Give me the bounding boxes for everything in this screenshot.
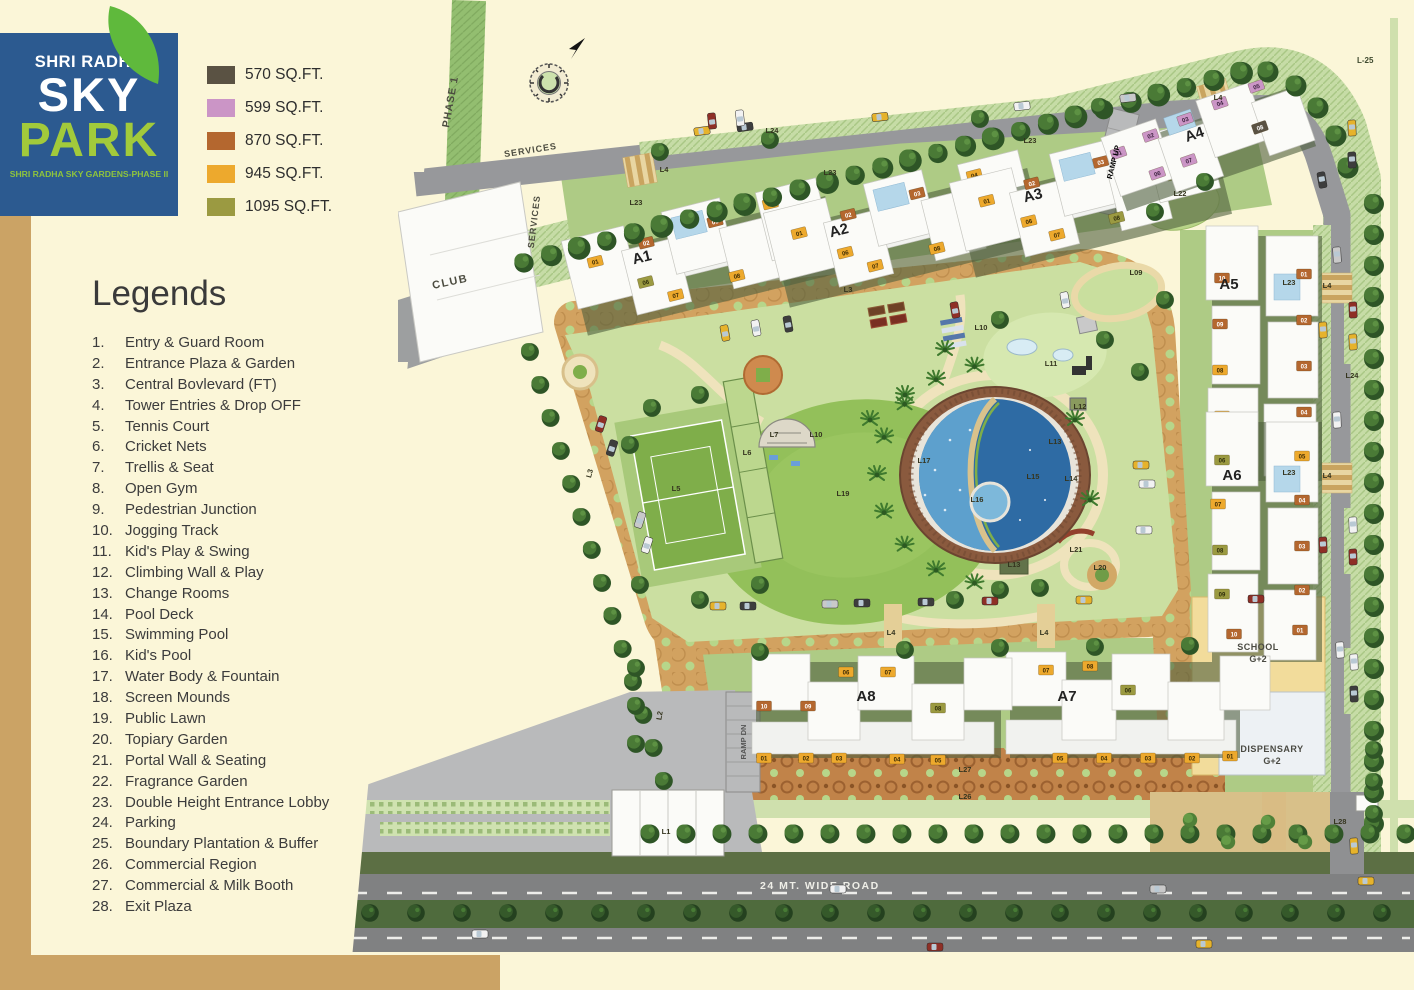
legend-item-number: 4. xyxy=(92,397,125,414)
legend-item: 27. Commercial & Milk Booth xyxy=(92,875,329,896)
map-label-l13: L13 xyxy=(1008,560,1021,569)
car xyxy=(918,598,934,606)
svg-text:04: 04 xyxy=(1101,756,1108,762)
unit-badge: 01 xyxy=(1297,269,1312,279)
svg-text:04: 04 xyxy=(894,757,901,763)
legend-item-number: 3. xyxy=(92,376,125,393)
legend-item-label: Screen Mounds xyxy=(125,689,230,706)
svg-text:01: 01 xyxy=(1297,628,1304,634)
legend-item-number: 27. xyxy=(92,877,125,894)
legend-item: 25. Boundary Plantation & Buffer xyxy=(92,833,329,854)
unit-badge: 06 xyxy=(839,667,854,677)
car xyxy=(1196,940,1212,948)
legend-item: 4. Tower Entries & Drop OFF xyxy=(92,395,329,416)
legend-item: 17. Water Body & Fountain xyxy=(92,666,329,687)
legend-item-label: Commercial Region xyxy=(125,856,257,873)
crossing-L4-a xyxy=(623,153,658,188)
car xyxy=(927,943,943,951)
car xyxy=(1349,517,1358,533)
car xyxy=(822,600,838,608)
unit-badge: 02 xyxy=(1297,315,1312,325)
map-label-l10: L10 xyxy=(975,323,988,332)
svg-text:07: 07 xyxy=(885,670,892,676)
car xyxy=(1333,247,1342,263)
legend-item-number: 15. xyxy=(92,626,125,643)
legend-item-label: Jogging Track xyxy=(125,522,218,539)
frame-left-strip xyxy=(0,216,31,990)
svg-text:09: 09 xyxy=(805,704,812,710)
legend-item: 5. Tennis Court xyxy=(92,416,329,437)
car xyxy=(982,597,998,605)
legend-item-number: 9. xyxy=(92,501,125,518)
legend-item: 15. Swimming Pool xyxy=(92,624,329,645)
legend-item: 14. Pool Deck xyxy=(92,604,329,625)
legend-item-number: 6. xyxy=(92,438,125,455)
legend-item: 21. Portal Wall & Seating xyxy=(92,750,329,771)
legend-item: 8. Open Gym xyxy=(92,478,329,499)
car xyxy=(1349,302,1358,318)
site-plan-map: 0102030405060708 0102030405060708 010203… xyxy=(340,0,1414,990)
legend-item: 24. Parking xyxy=(92,812,329,833)
car xyxy=(1336,642,1345,658)
unit-badge: 06 xyxy=(1121,685,1136,695)
unit-badge: 05 xyxy=(1295,451,1310,461)
size-legend: 570 SQ.FT.599 SQ.FT.870 SQ.FT.945 SQ.FT.… xyxy=(207,66,332,231)
legend-item-number: 28. xyxy=(92,898,125,915)
ramp-down-label: RAMP DN xyxy=(739,725,748,760)
map-label-l22: L22 xyxy=(1174,189,1187,198)
map-label-l15: L15 xyxy=(1027,472,1040,481)
unit-badge: 09 xyxy=(801,701,816,711)
legend-item-number: 1. xyxy=(92,334,125,351)
building-label-a8: A8 xyxy=(856,688,875,705)
size-legend-item: 599 SQ.FT. xyxy=(207,99,332,117)
size-label: 599 SQ.FT. xyxy=(245,99,323,117)
svg-text:08: 08 xyxy=(1087,664,1094,670)
size-legend-item: 945 SQ.FT. xyxy=(207,165,332,183)
size-label: 945 SQ.FT. xyxy=(245,165,323,183)
map-label-l16: L16 xyxy=(971,495,984,504)
size-legend-item: 1095 SQ.FT. xyxy=(207,198,332,216)
entry-gate-L1 xyxy=(612,790,724,856)
unit-badge: 02 xyxy=(799,753,814,763)
legend-item-label: Entrance Plaza & Garden xyxy=(125,355,295,372)
legend-item-number: 24. xyxy=(92,814,125,831)
legend-item-label: Pool Deck xyxy=(125,606,193,623)
pond xyxy=(1007,339,1037,355)
legend-item-label: Entry & Guard Room xyxy=(125,334,264,351)
unit-badge: 04 xyxy=(1097,753,1112,763)
map-label-l6: L6 xyxy=(743,448,752,457)
size-legend-item: 570 SQ.FT. xyxy=(207,66,332,84)
svg-text:02: 02 xyxy=(1299,588,1306,594)
legend-item-label: Boundary Plantation & Buffer xyxy=(125,835,318,852)
svg-text:01: 01 xyxy=(1227,754,1234,760)
map-label-l14: L14 xyxy=(1065,474,1079,483)
car xyxy=(735,110,745,127)
legend-item-number: 2. xyxy=(92,355,125,372)
legend-item: 10. Jogging Track xyxy=(92,520,329,541)
legend-item-number: 20. xyxy=(92,731,125,748)
map-label-l11: L11 xyxy=(1045,359,1058,368)
svg-text:03: 03 xyxy=(1301,364,1308,370)
play-equipment2 xyxy=(1086,356,1092,370)
boundary-strip-east xyxy=(1390,18,1398,860)
legend-item-number: 26. xyxy=(92,856,125,873)
building-a6: 06050704080309021001 xyxy=(1206,412,1322,662)
svg-text:05: 05 xyxy=(935,758,942,764)
map-label-l17: L17 xyxy=(918,456,931,465)
legend-item-number: 5. xyxy=(92,418,125,435)
svg-text:05: 05 xyxy=(1299,454,1306,460)
svg-text:03: 03 xyxy=(836,756,843,762)
legend-item-label: Exit Plaza xyxy=(125,898,192,915)
legend-item-label: Public Lawn xyxy=(125,710,206,727)
legend-item-number: 18. xyxy=(92,689,125,706)
map-label-l21: L21 xyxy=(1070,545,1083,554)
legend-item-label: Trellis & Seat xyxy=(125,459,214,476)
legend-item-label: Cricket Nets xyxy=(125,438,207,455)
map-label-l23: L23 xyxy=(1024,136,1037,145)
legend-item-label: Topiary Garden xyxy=(125,731,228,748)
size-swatch xyxy=(207,66,235,84)
legend-item-label: Portal Wall & Seating xyxy=(125,752,266,769)
car xyxy=(872,112,889,122)
legend-item: 6. Cricket Nets xyxy=(92,436,329,457)
car xyxy=(1139,480,1155,488)
map-label-l09: L09 xyxy=(1130,268,1143,277)
size-legend-item: 870 SQ.FT. xyxy=(207,132,332,150)
legend-item: 1. Entry & Guard Room xyxy=(92,332,329,353)
car xyxy=(1150,885,1166,893)
car xyxy=(1349,334,1358,350)
legends-title: Legends xyxy=(92,274,226,314)
svg-text:03: 03 xyxy=(1299,544,1306,550)
frame-bottom-strip xyxy=(0,955,500,990)
legend-item-label: Open Gym xyxy=(125,480,198,497)
dispensary-label: DISPENSARY xyxy=(1240,744,1303,754)
unit-badge: 06 xyxy=(1215,455,1230,465)
map-label-l13: L13 xyxy=(1049,437,1062,446)
legend-item-number: 22. xyxy=(92,773,125,790)
hedge-row-1 xyxy=(360,800,610,814)
car xyxy=(1136,526,1152,534)
school-floors-label: G+2 xyxy=(1249,654,1266,664)
building-label-a5: A5 xyxy=(1219,276,1238,293)
legend-item-label: Change Rooms xyxy=(125,585,229,602)
map-label-l2: L2 xyxy=(654,710,664,720)
car xyxy=(854,599,870,607)
svg-text:09: 09 xyxy=(1219,592,1226,598)
map-label-l4: L4 xyxy=(1323,471,1333,480)
car xyxy=(740,602,756,610)
svg-text:07: 07 xyxy=(1043,668,1050,674)
svg-text:02: 02 xyxy=(1189,756,1196,762)
unit-badge: 07 xyxy=(881,667,896,677)
legend-item: 2. Entrance Plaza & Garden xyxy=(92,353,329,374)
legend-item-number: 13. xyxy=(92,585,125,602)
boundary-label: L-25 xyxy=(1357,56,1374,65)
car xyxy=(1350,838,1359,854)
car xyxy=(1133,461,1149,469)
wide-road-label: 24 MT. WIDE ROAD xyxy=(760,880,880,892)
logo-title-park: PARK xyxy=(0,118,178,164)
unit-badge: 01 xyxy=(757,753,772,763)
unit-badge: 08 xyxy=(931,703,946,713)
svg-text:06: 06 xyxy=(1125,688,1132,694)
car xyxy=(1350,654,1359,670)
logo-subtitle: SHRI RADHA SKY GARDENS-PHASE II xyxy=(0,169,178,179)
unit-badge: 10 xyxy=(1227,629,1242,639)
svg-text:01: 01 xyxy=(1301,272,1308,278)
hedge-row-2 xyxy=(380,822,610,836)
map-label-l27: L27 xyxy=(959,765,972,774)
svg-text:06: 06 xyxy=(843,670,850,676)
leaf-icon xyxy=(94,2,176,88)
legend-item: 22. Fragrance Garden xyxy=(92,771,329,792)
legend-item-number: 19. xyxy=(92,710,125,727)
map-label-l20: L20 xyxy=(1094,563,1107,572)
car xyxy=(1348,152,1357,168)
map-label-l4: L4 xyxy=(660,165,670,174)
map-label-l26: L26 xyxy=(959,792,972,801)
unit-badge: 02 xyxy=(1185,753,1200,763)
car xyxy=(830,885,846,893)
size-swatch xyxy=(207,198,235,216)
legend-item-label: Fragrance Garden xyxy=(125,773,248,790)
legend-item: 7. Trellis & Seat xyxy=(92,457,329,478)
legend-item-number: 23. xyxy=(92,794,125,811)
car xyxy=(1333,412,1342,428)
size-swatch xyxy=(207,99,235,117)
svg-text:02: 02 xyxy=(803,756,810,762)
car xyxy=(1248,595,1264,603)
svg-text:08: 08 xyxy=(935,706,942,712)
legend-item: 28. Exit Plaza xyxy=(92,896,329,917)
map-label-l23: L23 xyxy=(1283,278,1296,287)
car xyxy=(1319,537,1328,553)
map-label-l23: L23 xyxy=(824,168,837,177)
unit-badge: 04 xyxy=(1297,407,1312,417)
roadside-green xyxy=(345,852,1414,874)
building-label-a7: A7 xyxy=(1057,688,1076,705)
size-swatch xyxy=(207,132,235,150)
legends-list: 1. Entry & Guard Room 2. Entrance Plaza … xyxy=(92,332,329,917)
unit-badge: 05 xyxy=(1053,753,1068,763)
unit-badge: 08 xyxy=(1213,545,1228,555)
legend-item: 18. Screen Mounds xyxy=(92,687,329,708)
map-label-l28: L28 xyxy=(1334,817,1347,826)
unit-badge: 09 xyxy=(1215,589,1230,599)
school-label: SCHOOL xyxy=(1237,642,1279,652)
legend-item-number: 14. xyxy=(92,606,125,623)
garden-circle-center xyxy=(573,365,587,379)
legend-item-number: 8. xyxy=(92,480,125,497)
building-label-a6: A6 xyxy=(1222,467,1241,484)
car xyxy=(1076,596,1092,604)
svg-text:01: 01 xyxy=(761,756,768,762)
unit-badge: 03 xyxy=(832,753,847,763)
compass-icon xyxy=(530,64,568,102)
map-label-l19: L19 xyxy=(837,489,850,498)
legend-item: 23. Double Height Entrance Lobby xyxy=(92,792,329,813)
building-a8: 06071009080102030405 xyxy=(752,654,1012,765)
unit-badge: 05 xyxy=(931,755,946,765)
svg-text:05: 05 xyxy=(1057,756,1064,762)
svg-text:04: 04 xyxy=(1301,410,1308,416)
car xyxy=(1014,101,1031,111)
unit-badge: 02 xyxy=(1295,585,1310,595)
legend-item-label: Kid's Play & Swing xyxy=(125,543,250,560)
map-label-l10: L10 xyxy=(810,430,823,439)
unit-badge: 03 xyxy=(1141,753,1156,763)
map-label-l5: L5 xyxy=(672,484,681,493)
legend-item: 12. Climbing Wall & Play xyxy=(92,562,329,583)
unit-badge: 10 xyxy=(757,701,772,711)
walkway-L4-a xyxy=(884,604,902,648)
unit-badge: 08 xyxy=(1213,365,1228,375)
legend-item: 3. Central Bovlevard (FT) xyxy=(92,374,329,395)
unit-badge: 01 xyxy=(1223,751,1238,761)
svg-text:10: 10 xyxy=(761,704,768,710)
unit-badge: 07 xyxy=(1211,499,1226,509)
size-label: 1095 SQ.FT. xyxy=(245,198,332,216)
legend-item-label: Parking xyxy=(125,814,176,831)
svg-text:08: 08 xyxy=(1217,548,1224,554)
map-label-l1: L1 xyxy=(662,827,671,836)
pool-complex xyxy=(900,387,1090,563)
map-label-l7: L7 xyxy=(770,430,779,439)
legend-item: 13. Change Rooms xyxy=(92,583,329,604)
svg-text:04: 04 xyxy=(1299,498,1306,504)
car xyxy=(1348,120,1357,136)
map-label-l4: L4 xyxy=(1040,628,1050,637)
legend-item: 20. Topiary Garden xyxy=(92,729,329,750)
map-label-l4: L4 xyxy=(1323,281,1333,290)
unit-badge: 09 xyxy=(1213,319,1228,329)
legend-item-label: Swimming Pool xyxy=(125,626,228,643)
junction-center xyxy=(756,368,770,382)
legend-item-number: 16. xyxy=(92,647,125,664)
svg-text:09: 09 xyxy=(1217,322,1224,328)
map-label-l23: L23 xyxy=(630,198,643,207)
building-a7: 0708060504030201 xyxy=(1006,652,1270,763)
legend-item-label: Pedestrian Junction xyxy=(125,501,257,518)
legend-item-number: 12. xyxy=(92,564,125,581)
unit-badge: 07 xyxy=(1039,665,1054,675)
size-label: 870 SQ.FT. xyxy=(245,132,323,150)
legend-item-label: Commercial & Milk Booth xyxy=(125,877,293,894)
svg-text:06: 06 xyxy=(1219,458,1226,464)
legend-item-label: Tennis Court xyxy=(125,418,209,435)
svg-text:02: 02 xyxy=(1301,318,1308,324)
legend-item-label: Kid's Pool xyxy=(125,647,191,664)
svg-text:03: 03 xyxy=(1145,756,1152,762)
map-label-l23: L23 xyxy=(1283,468,1296,477)
legend-item-label: Water Body & Fountain xyxy=(125,668,280,685)
legend-item-number: 17. xyxy=(92,668,125,685)
legend-item: 11. Kid's Play & Swing xyxy=(92,541,329,562)
svg-text:08: 08 xyxy=(1217,368,1224,374)
legend-item-number: 25. xyxy=(92,835,125,852)
map-label-l3: L3 xyxy=(844,285,853,294)
car xyxy=(707,113,717,130)
legend-item-label: Central Bovlevard (FT) xyxy=(125,376,277,393)
car xyxy=(472,930,488,938)
legend-item: 16. Kid's Pool xyxy=(92,645,329,666)
svg-text:07: 07 xyxy=(1215,502,1222,508)
legend-item-number: 7. xyxy=(92,459,125,476)
legend-item-number: 21. xyxy=(92,752,125,769)
legend-item-label: Tower Entries & Drop OFF xyxy=(125,397,301,414)
unit-badge: 03 xyxy=(1297,361,1312,371)
legend-item: 19. Public Lawn xyxy=(92,708,329,729)
legend-item-label: Climbing Wall & Play xyxy=(125,564,264,581)
size-swatch xyxy=(207,165,235,183)
map-label-l4: L4 xyxy=(887,628,897,637)
map-label-l24: L24 xyxy=(1346,371,1360,380)
legend-item: 9. Pedestrian Junction xyxy=(92,499,329,520)
unit-badge: 08 xyxy=(1083,661,1098,671)
car xyxy=(710,602,726,610)
play-equipment xyxy=(1072,366,1086,375)
legend-item-number: 10. xyxy=(92,522,125,539)
map-label-l12: L12 xyxy=(1074,402,1087,411)
dispensary-floors-label: G+2 xyxy=(1263,756,1280,766)
car xyxy=(1120,93,1137,103)
car xyxy=(1349,549,1358,565)
legend-item: 26. Commercial Region xyxy=(92,854,329,875)
map-label-l4: L4 xyxy=(1214,93,1224,102)
unit-badge: 01 xyxy=(1293,625,1308,635)
walkway-L4-b xyxy=(1037,604,1055,648)
svg-text:10: 10 xyxy=(1231,632,1238,638)
size-label: 570 SQ.FT. xyxy=(245,66,323,84)
page: { "logo": { "brand": "SHRI RADHA", "titl… xyxy=(0,0,1414,990)
unit-badge: 04 xyxy=(1295,495,1310,505)
map-label-l24: L24 xyxy=(766,126,780,135)
car xyxy=(1319,322,1328,338)
car xyxy=(1358,877,1374,885)
unit-badge: 03 xyxy=(1295,541,1310,551)
car xyxy=(1350,686,1359,702)
legend-item-number: 11. xyxy=(92,543,125,560)
unit-badge: 04 xyxy=(890,754,905,764)
legend-item-label: Double Height Entrance Lobby xyxy=(125,794,329,811)
